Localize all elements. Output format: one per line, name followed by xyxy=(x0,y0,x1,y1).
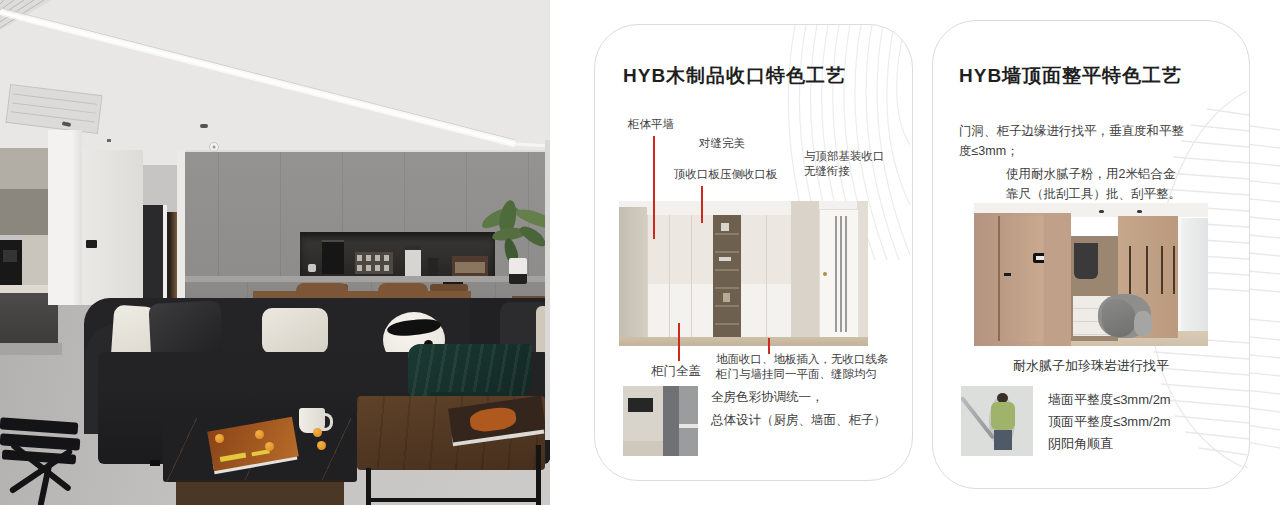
card-woodwork-process: HYB木制品收口特色工艺 柜体平墙 对缝完美 顶收口板压侧收口板 与顶部基装收口… xyxy=(594,24,913,481)
color-scheme-thumbnail xyxy=(623,386,698,456)
table-leg xyxy=(536,445,541,505)
kumquat xyxy=(265,442,274,451)
teal-blanket xyxy=(408,344,532,398)
leveling-paragraph-2: 使用耐水腻子粉，用2米铝合金 靠尺（批刮工具）批、刮平整。 xyxy=(1006,164,1181,204)
worker-thumbnail xyxy=(961,386,1033,456)
kumquat xyxy=(313,428,322,437)
card-wall-leveling-process: HYB墙顶面整平特色工艺 门洞、柜子边缘进行找平，垂直度和平整 度≤3mm； 使… xyxy=(932,20,1250,489)
kumquat xyxy=(317,441,326,450)
stone-table-base xyxy=(176,480,344,505)
photo-right-edge xyxy=(545,140,550,440)
annotation-line-door-cover xyxy=(678,323,680,361)
white-column xyxy=(48,130,82,305)
leveling-paragraph-1-line1: 门洞、柜子边缘进行找平，垂直度和平整 xyxy=(959,121,1184,141)
hallway-wood-door xyxy=(167,212,177,302)
annotation-line-wall xyxy=(653,136,655,239)
hallway-wall xyxy=(82,150,143,305)
kumquat xyxy=(255,430,264,439)
table-bar xyxy=(370,498,540,502)
label-door-full-cover: 柜门全盖 xyxy=(651,364,701,379)
annotation-line-top-panel xyxy=(701,186,703,223)
wardrobe-render-image xyxy=(619,201,868,346)
sofa-foot xyxy=(150,460,160,466)
hallway-dark-door xyxy=(143,205,163,302)
coffee-niche xyxy=(300,232,495,280)
label-cabinet-flush-wall: 柜体平墙 xyxy=(628,117,674,132)
leveling-paragraph-2-line2: 靠尺（批刮工具）批、刮平整。 xyxy=(1006,184,1181,204)
label-ceiling-joint-line2: 无缝衔接 xyxy=(804,164,885,179)
retro-radio xyxy=(452,256,488,276)
light-switch xyxy=(86,240,97,248)
label-floor-joint: 地面收口、地板插入，无收口线条 柜门与墙挂同一平面、缝隙均匀 xyxy=(716,352,889,382)
spec-ceiling-flatness: 顶面平整度≤3mm/2m xyxy=(1048,411,1171,433)
card2-title: HYB墙顶面整平特色工艺 xyxy=(959,63,1182,89)
spec-wall-flatness: 墙面平整度≤3mm/2m xyxy=(1048,389,1171,411)
leveling-paragraph-2-line1: 使用耐水腻子粉，用2米铝合金 xyxy=(1006,164,1181,184)
image-caption: 耐水腻子加珍珠岩进行找平 xyxy=(974,357,1208,375)
color-note: 全房色彩协调统一， 总体设计（厨房、墙面、柜子） xyxy=(711,389,886,429)
grinder xyxy=(428,258,438,276)
card1-title: HYB木制品收口特色工艺 xyxy=(623,63,846,89)
color-note-line2: 总体设计（厨房、墙面、柜子） xyxy=(711,412,886,429)
label-perfect-seam: 对缝完美 xyxy=(699,136,745,151)
flatness-specs: 墙面平整度≤3mm/2m 顶面平整度≤3mm/2m 阴阳角顺直 xyxy=(1048,389,1171,455)
label-floor-joint-line2: 柜门与墙挂同一平面、缝隙均匀 xyxy=(716,367,889,382)
label-ceiling-joint: 与顶部基装收口 无缝衔接 xyxy=(804,149,885,179)
kumquat xyxy=(215,434,224,443)
cloakroom-photo xyxy=(974,203,1208,346)
black-folding-stool xyxy=(0,412,90,505)
living-room-photo xyxy=(0,0,550,505)
color-note-line1: 全房色彩协调统一， xyxy=(711,389,886,406)
white-coffee-maker xyxy=(405,246,421,280)
spec-corners: 阴阳角顺直 xyxy=(1048,433,1171,455)
wall-corner-strip xyxy=(177,150,185,305)
cup xyxy=(308,264,316,272)
cream-pillow xyxy=(262,308,328,354)
leveling-paragraph-1-line2: 度≤3mm； xyxy=(959,141,1184,161)
label-ceiling-joint-line1: 与顶部基装收口 xyxy=(804,149,885,164)
label-floor-joint-line1: 地面收口、地板插入，无收口线条 xyxy=(716,352,889,367)
ceiling xyxy=(0,0,550,165)
plant-vase xyxy=(509,258,527,284)
label-top-panel: 顶收口板压侧收口板 xyxy=(674,167,778,182)
kitchen-coffee-machine xyxy=(0,240,22,288)
leveling-paragraph-1: 门洞、柜子边缘进行找平，垂直度和平整 度≤3mm； xyxy=(959,121,1184,161)
kitchen-floor-shadow xyxy=(0,343,62,355)
espresso-machine xyxy=(322,240,344,274)
cup-rack xyxy=(355,252,393,274)
